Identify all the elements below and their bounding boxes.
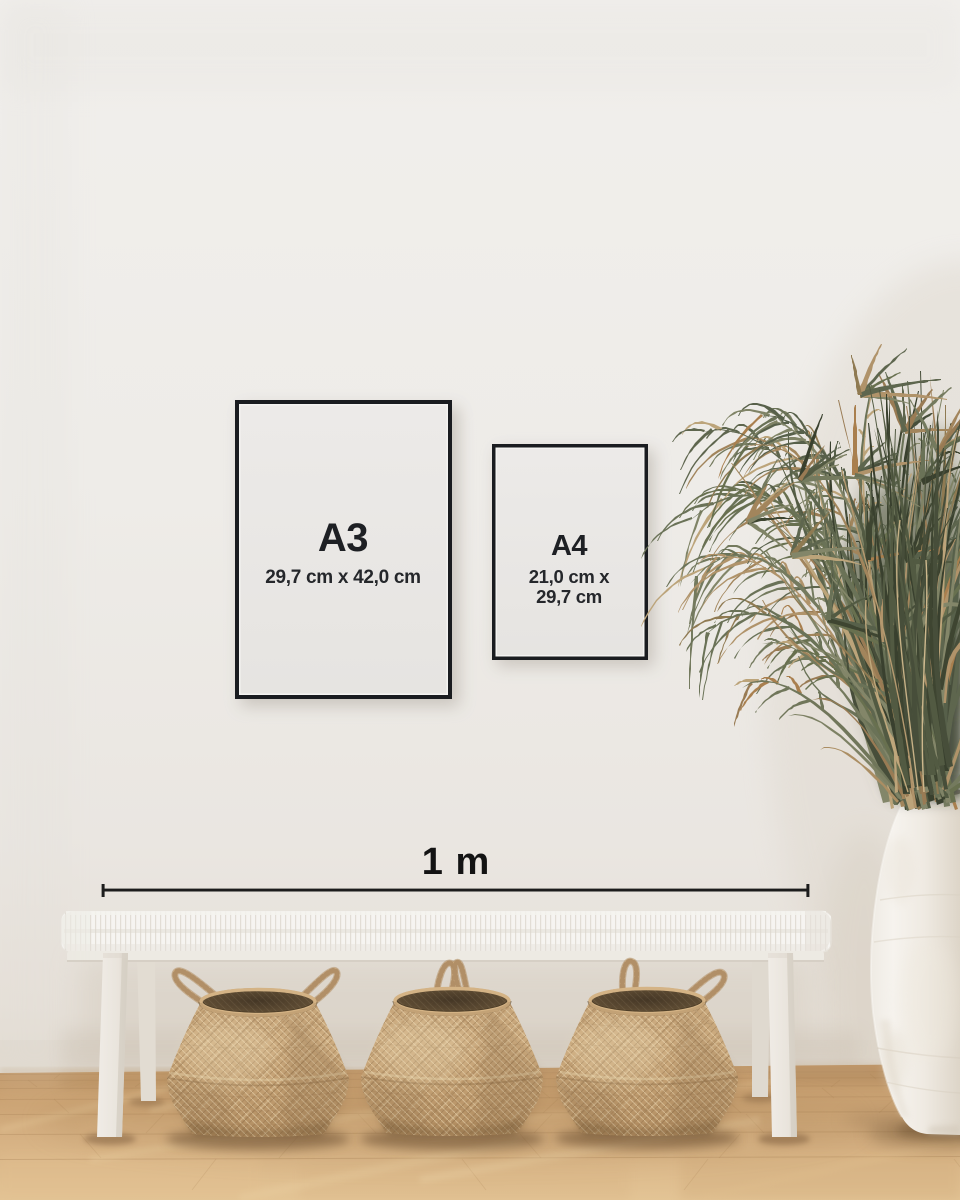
svg-text:A4: A4: [551, 530, 587, 562]
svg-text:29,7 cm: 29,7 cm: [536, 586, 602, 607]
svg-text:21,0 cm x: 21,0 cm x: [529, 566, 611, 587]
svg-text:A3: A3: [318, 516, 368, 560]
svg-text:29,7 cm x 42,0 cm: 29,7 cm x 42,0 cm: [265, 567, 420, 588]
svg-text:1 m: 1 m: [422, 841, 490, 883]
